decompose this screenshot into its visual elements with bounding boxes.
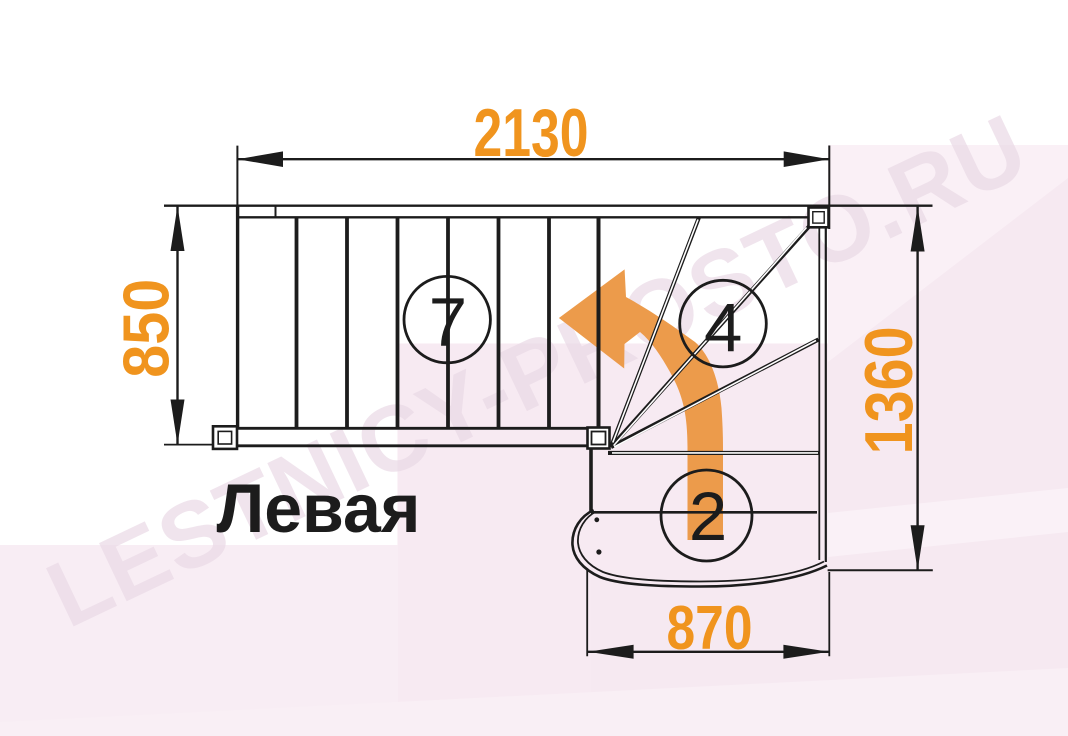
svg-text:870: 870: [667, 594, 753, 663]
svg-text:2: 2: [689, 478, 727, 555]
svg-text:2130: 2130: [474, 95, 589, 171]
svg-text:4: 4: [704, 289, 742, 366]
svg-text:7: 7: [429, 284, 467, 361]
svg-text:Левая: Левая: [217, 470, 421, 547]
svg-text:850: 850: [110, 279, 183, 378]
svg-text:1360: 1360: [851, 326, 927, 454]
